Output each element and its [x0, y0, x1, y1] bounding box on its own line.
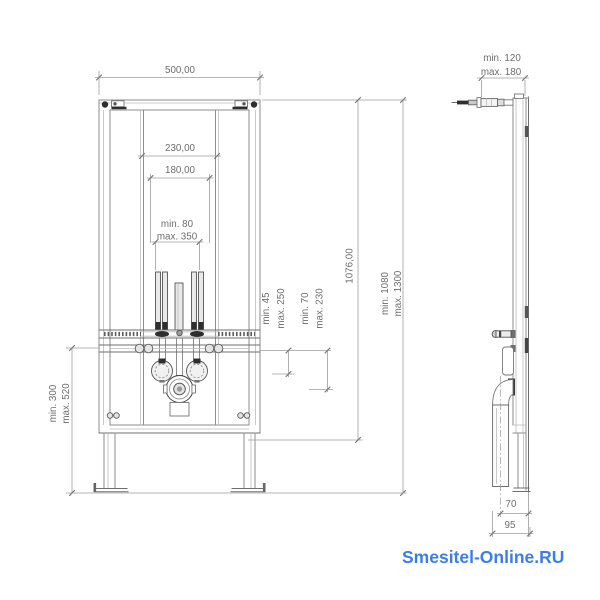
side-view — [452, 94, 530, 517]
dim-label-lower-min: min. 300 — [48, 384, 59, 422]
side-drain-elbow — [493, 347, 515, 517]
serrated-mounting-rail — [99, 330, 260, 338]
dim-anchor-spacing: 230,00 — [138, 143, 221, 159]
dim-label-conn-min: min. 45 — [261, 292, 272, 325]
legs-and-feet — [94, 433, 266, 492]
side-inlet-fitting — [452, 98, 513, 108]
installation-frame-drawing: 500,00 230,00 180,00 min. 80 max. 350 — [0, 0, 600, 600]
dim-front-width: 500,00 — [95, 65, 264, 95]
dim-drain-offset: min. 70 max. 230 — [300, 288, 333, 392]
dim-label-inlet-min: min. 120 — [483, 53, 521, 64]
dimensions: 500,00 230,00 180,00 min. 80 max. 350 — [48, 53, 534, 537]
dim-label-drain-axis: 70 — [506, 499, 517, 510]
dim-label-mount-depth: 95 — [505, 520, 516, 531]
dim-label-supply-max: max. 350 — [157, 232, 198, 243]
dim-install-height: min. 1080 max. 1300 — [380, 97, 406, 496]
watermark-text: Smesitel-Online.RU — [402, 547, 564, 567]
side-leg-foot — [513, 433, 530, 492]
front-view — [94, 100, 266, 492]
dim-label-install-max: max. 1300 — [393, 270, 404, 316]
dim-label-width: 500,00 — [165, 65, 196, 76]
dim-label-inlet-max: max. 180 — [481, 67, 522, 78]
product-drawing-page: 500,00 230,00 180,00 min. 80 max. 350 — [0, 0, 600, 600]
dim-label-supply-min: min. 80 — [161, 219, 194, 230]
dim-label-fixing-spacing: 180,00 — [165, 165, 196, 176]
dim-label-conn-max: max. 250 — [276, 288, 287, 329]
side-stub-pipe — [492, 331, 511, 338]
drain-socket — [164, 375, 196, 416]
dim-inlet-depth: min. 120 max. 180 — [477, 53, 529, 97]
dim-label-drain-min: min. 70 — [300, 292, 311, 325]
side-profile — [511, 94, 529, 492]
dim-label-drain-max: max. 230 — [314, 288, 325, 329]
dim-lower-zone: min. 300 max. 520 — [48, 345, 100, 496]
corner-anchor-brackets — [102, 101, 257, 109]
dim-label-install-min: min. 1080 — [380, 271, 391, 315]
dim-supply-height: min. 80 max. 350 — [152, 219, 204, 270]
dim-label-lower-max: max. 520 — [61, 383, 72, 424]
dim-label-anchor-spacing: 230,00 — [165, 143, 196, 154]
adjustment-rail — [99, 344, 260, 353]
dim-label-frame-height: 1076,00 — [344, 248, 355, 284]
